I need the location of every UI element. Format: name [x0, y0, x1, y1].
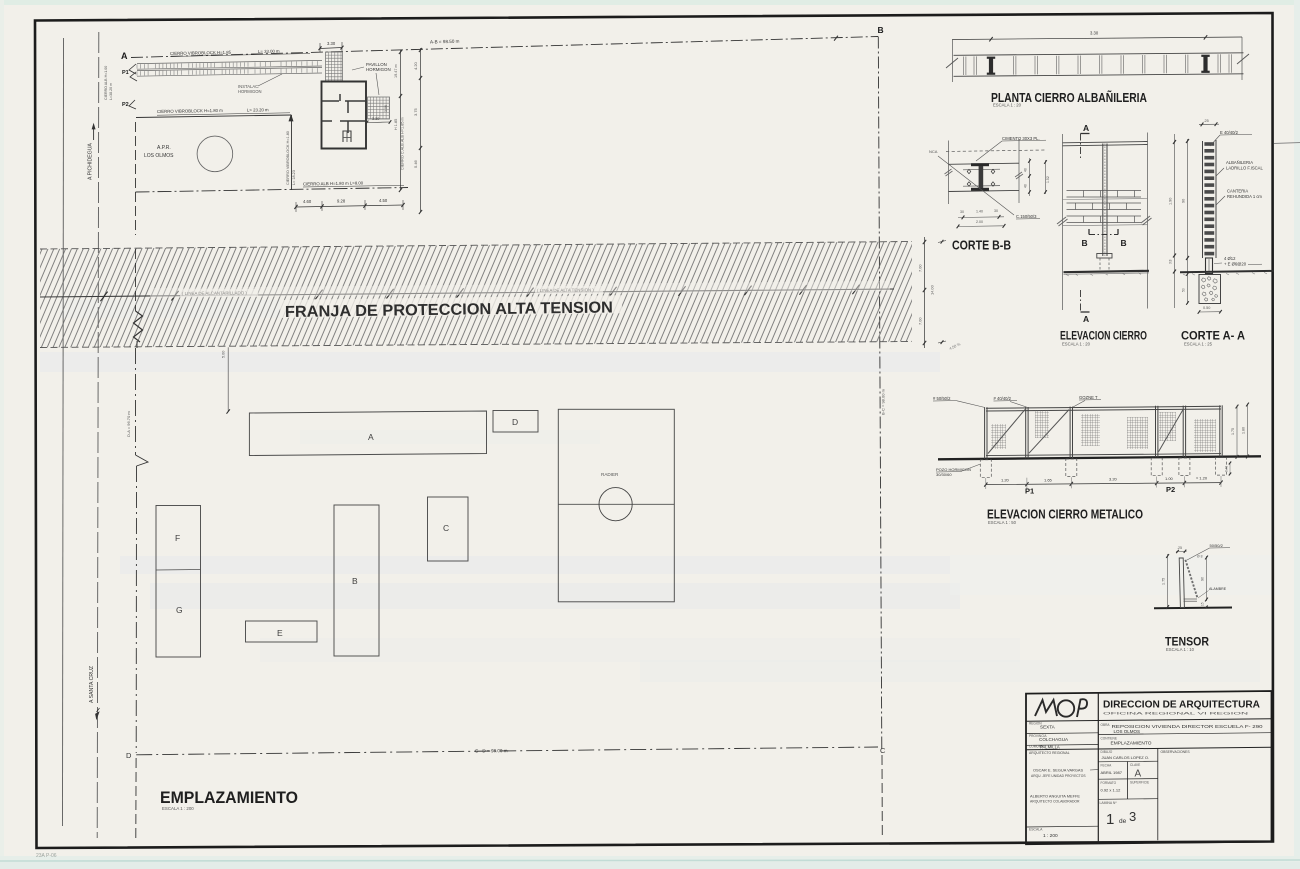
svg-text:1.65: 1.65: [1044, 477, 1053, 482]
svg-text:1.80: 1.80: [1242, 427, 1246, 434]
svg-text:de: de: [1119, 818, 1127, 825]
svg-text:LAMINA Nº: LAMINA Nº: [1100, 801, 1118, 805]
svg-text:1.75: 1.75: [1231, 428, 1235, 435]
svg-text:D-A = 96.70 m: D-A = 96.70 m: [126, 411, 131, 437]
svg-text:5.00: 5.00: [222, 351, 226, 358]
svg-text:ELEVACION CIERRO: ELEVACION CIERRO: [1060, 329, 1147, 343]
svg-text:B: B: [1082, 238, 1088, 248]
svg-text:1.20: 1.20: [1001, 478, 1010, 483]
svg-text:A PICHIDEGUA: A PICHIDEGUA: [88, 143, 94, 180]
svg-text:50/50/2: 50/50/2: [1210, 543, 1224, 548]
svg-text:+ E Ø6@20: + E Ø6@20: [1224, 262, 1247, 267]
svg-text:A: A: [1083, 123, 1089, 133]
svg-text:OBRA: OBRA: [1101, 723, 1111, 727]
svg-text:40: 40: [1024, 184, 1028, 188]
svg-text:FORMATO: FORMATO: [1101, 781, 1117, 785]
svg-text:3.30: 3.30: [372, 117, 379, 121]
svg-text:CIERRO ALB H=1.80 m L=8.0: CIERRO ALB H=1.80 m L=8.00: [303, 180, 364, 186]
svg-text:ALBERTO ANGUITA MEFFE: ALBERTO ANGUITA MEFFE: [1030, 793, 1080, 798]
svg-text:CONTIENE: CONTIENE: [1101, 737, 1117, 741]
svg-text:14.00: 14.00: [930, 284, 935, 295]
svg-text:H 1.85: H 1.85: [394, 119, 398, 130]
svg-text:HORMIGON: HORMIGON: [238, 89, 262, 94]
svg-text:# 50/50/2: # 50/50/2: [933, 396, 951, 401]
svg-text:C.150/50/3: C.150/50/3: [1016, 214, 1037, 219]
svg-text:L= 23.20 m: L= 23.20 m: [247, 107, 269, 112]
svg-text:7.00: 7.00: [918, 317, 923, 325]
svg-text:3.30: 3.30: [327, 41, 336, 46]
svg-text:JUAN CARLOS LOPEZ O.: JUAN CARLOS LOPEZ O.: [1102, 755, 1150, 760]
svg-text:ESCALA 1 : 20: ESCALA 1 : 20: [1062, 342, 1091, 347]
svg-text:C: C: [880, 746, 886, 755]
svg-text:LADRILLO F.ISCAL: LADRILLO F.ISCAL: [1226, 166, 1263, 171]
svg-text:3.75: 3.75: [413, 107, 418, 116]
svg-text:CANTERIA: CANTERIA: [1227, 189, 1248, 194]
svg-text:E 40/40/2: E 40/40/2: [1220, 130, 1239, 135]
svg-text:B: B: [878, 25, 884, 35]
svg-text:1.40: 1.40: [976, 210, 983, 214]
svg-text:OBSERVACIONES: OBSERVACIONES: [1161, 750, 1191, 754]
svg-text:ESCALA 1 : 10: ESCALA 1 : 10: [1166, 647, 1195, 652]
svg-text:0.50: 0.50: [1203, 306, 1210, 310]
svg-text:.25: .25: [1204, 119, 1209, 123]
svg-text:D: D: [126, 751, 132, 760]
svg-text:1 : 200: 1 : 200: [1043, 833, 1058, 839]
svg-text:L= 33.00 m: L= 33.00 m: [258, 49, 280, 54]
svg-text:Ø 8: Ø 8: [1197, 555, 1203, 559]
svg-text:4.50: 4.50: [379, 198, 388, 203]
svg-text:F: F: [175, 533, 180, 543]
svg-text:LOS OLMOS: LOS OLMOS: [1114, 729, 1141, 734]
svg-text:C - D = 98.00 m: C - D = 98.00 m: [475, 748, 508, 753]
svg-text:B: B: [352, 576, 358, 586]
svg-text:B: B: [1121, 238, 1127, 248]
svg-text:P2: P2: [122, 102, 129, 108]
svg-text:A: A: [1083, 314, 1089, 324]
svg-text:1.52: 1.52: [1046, 176, 1050, 183]
svg-text:DIRECCION DE ARQUITECTURA: DIRECCION DE ARQUITECTURA: [1103, 700, 1261, 711]
svg-text:3.06: 3.06: [384, 105, 388, 112]
svg-text:ALAMBRE: ALAMBRE: [1209, 587, 1227, 591]
svg-text:NCA: NCA: [929, 149, 938, 154]
svg-text:CIERRO ALB H=1.00: CIERRO ALB H=1.00: [104, 66, 108, 100]
svg-text:3.30: 3.30: [1090, 31, 1099, 36]
svg-text:5.46: 5.46: [413, 159, 418, 168]
svg-text:19.47 m: 19.47 m: [394, 64, 398, 78]
svg-text:FECHA: FECHA: [1101, 763, 1113, 767]
svg-text:CLAVE: CLAVE: [1130, 763, 1140, 767]
svg-text:90: 90: [1182, 199, 1186, 203]
svg-text:ARQUITECTO REGIONAL: ARQUITECTO REGIONAL: [1029, 751, 1070, 755]
svg-text:2.00: 2.00: [976, 220, 983, 224]
svg-text:CIERRO C.ALB.ALB H=1.85 m: CIERRO C.ALB.ALB H=1.85 m: [401, 117, 405, 170]
svg-text:# 40/40/2: # 40/40/2: [994, 396, 1012, 401]
svg-text:REHUNDIDA 1 cm: REHUNDIDA 1 cm: [1227, 194, 1262, 199]
svg-text:4.20: 4.20: [413, 61, 418, 70]
svg-text:GOZNE T: GOZNE T: [1079, 395, 1098, 400]
svg-text:.25: .25: [1177, 546, 1182, 550]
svg-text:30: 30: [994, 209, 998, 213]
svg-text:ARQUITECTO COLABORADOR: ARQUITECTO COLABORADOR: [1030, 800, 1080, 804]
svg-text:A: A: [121, 51, 128, 61]
svg-text:SUPERFICIE: SUPERFICIE: [1130, 781, 1149, 785]
svg-text:OSCAR E. SEGUA VARGAS: OSCAR E. SEGUA VARGAS: [1033, 768, 1083, 773]
svg-text:D: D: [512, 417, 518, 427]
svg-text:OFICINA REGIONAL VI R: OFICINA REGIONAL VI REGION: [1103, 710, 1248, 715]
svg-text:E: E: [277, 628, 283, 638]
svg-text:ESCALA 1 : 200: ESCALA 1 : 200: [162, 806, 194, 811]
svg-text:1.00: 1.00: [1165, 476, 1174, 481]
svg-text:1: 1: [1106, 811, 1114, 828]
svg-text:L=38.20 m: L=38.20 m: [109, 83, 113, 100]
svg-text:30: 30: [960, 210, 964, 214]
svg-text:30/30/60: 30/30/60: [936, 472, 952, 477]
svg-text:ESCALA 1 : 25: ESCALA 1 : 25: [1184, 342, 1213, 347]
svg-text:3: 3: [1129, 809, 1136, 824]
svg-text:EMPLAZAMIENTO: EMPLAZAMIENTO: [160, 789, 298, 807]
svg-text:A-B = 98.50 m: A-B = 98.50 m: [430, 39, 460, 45]
svg-text:L= 18.23: L= 18.23: [292, 170, 296, 185]
svg-text:A: A: [368, 432, 374, 442]
svg-text:P1: P1: [1025, 487, 1034, 496]
svg-text:23A P-06: 23A P-06: [36, 853, 57, 859]
svg-text:COLCHAGUA: COLCHAGUA: [1039, 737, 1069, 742]
svg-text:CORTE A- A: CORTE A- A: [1181, 329, 1245, 343]
svg-text:ESCALA: ESCALA: [1029, 827, 1043, 831]
svg-text:LOS OLMOS: LOS OLMOS: [144, 153, 174, 159]
svg-text:90: 90: [1201, 577, 1205, 581]
svg-text:P1: P1: [122, 70, 129, 76]
svg-text:≈ 1.20: ≈ 1.20: [1196, 476, 1208, 481]
svg-text:C: C: [443, 523, 449, 533]
svg-text:A: A: [1135, 769, 1142, 780]
svg-text:4 Ø12: 4 Ø12: [1224, 256, 1236, 261]
svg-text:3.8: 3.8: [1169, 259, 1173, 264]
svg-text:ALBAÑILERIA: ALBAÑILERIA: [1226, 160, 1253, 165]
svg-text:CORTE B-B: CORTE B-B: [952, 239, 1011, 253]
svg-text:PALMILLA: PALMILLA: [1040, 744, 1060, 749]
svg-text:B-C = 98.00 m: B-C = 98.00 m: [881, 388, 886, 415]
svg-text:1.75: 1.75: [1162, 578, 1166, 585]
svg-text:ESCALA 1 : 50: ESCALA 1 : 50: [988, 520, 1017, 525]
svg-text:EMPLAZAMIENTO: EMPLAZAMIENTO: [1111, 740, 1152, 746]
svg-text:ARQU. JEFE UNIDAD PROYECTOS: ARQU. JEFE UNIDAD PROYECTOS: [1031, 774, 1086, 778]
svg-text:ESCALA 1 : 20: ESCALA 1 : 20: [993, 103, 1022, 108]
svg-text:HORMIGON: HORMIGON: [366, 67, 391, 72]
svg-text:3.20: 3.20: [1109, 477, 1118, 482]
svg-text:0.92 x 1.12: 0.92 x 1.12: [1101, 788, 1122, 793]
svg-text:SEXTA: SEXTA: [1040, 725, 1056, 730]
svg-text:RADIER: RADIER: [601, 472, 619, 477]
svg-text:50: 50: [1182, 288, 1186, 292]
svg-text:G: G: [176, 605, 183, 615]
svg-text:40: 40: [1024, 168, 1028, 172]
svg-text:1.90: 1.90: [1169, 198, 1173, 205]
svg-text:4.60: 4.60: [303, 199, 312, 204]
svg-text:A SANTA CRUZ: A SANTA CRUZ: [89, 666, 95, 703]
svg-text:CIERRO VIBROBLOCK H=1.80: CIERRO VIBROBLOCK H=1.80: [286, 131, 290, 185]
svg-text:15: 15: [1201, 602, 1205, 606]
svg-text:7.00: 7.00: [918, 264, 923, 272]
svg-text:0.40: 0.40: [1225, 466, 1229, 472]
svg-text:ABRIL 1987: ABRIL 1987: [1101, 770, 1123, 775]
svg-text:DIBUJO: DIBUJO: [1101, 750, 1113, 754]
svg-text:P2: P2: [1166, 485, 1175, 494]
svg-text:9.28: 9.28: [337, 199, 346, 204]
svg-text:A.P.R.: A.P.R.: [157, 145, 171, 151]
